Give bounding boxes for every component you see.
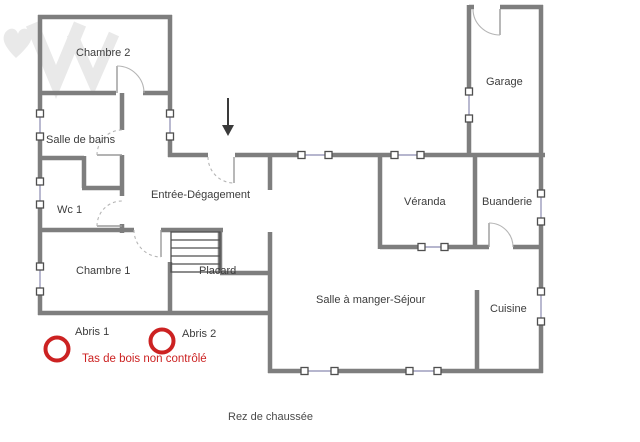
- room-label-buanderie: Buanderie: [482, 196, 532, 208]
- window-icon: [418, 244, 448, 251]
- window-icon: [538, 190, 545, 225]
- abris-1-label: Abris 1: [75, 326, 109, 338]
- room-label-cuisine: Cuisine: [490, 303, 527, 315]
- room-label-chambre-2: Chambre 2: [76, 47, 130, 59]
- room-label-chambre-1: Chambre 1: [76, 265, 130, 277]
- abris-2-marker: [151, 330, 174, 353]
- window-icon: [37, 110, 44, 140]
- window-icon: [301, 368, 338, 375]
- room-label-wc-1: Wc 1: [57, 204, 82, 216]
- door-arc-icon: [473, 9, 500, 35]
- window-icon: [37, 178, 44, 208]
- door-arc-icon: [489, 223, 513, 247]
- floor-plan-canvas: Chambre 2 Garage Salle de bains Wc 1 Ent…: [0, 0, 640, 442]
- floor-title: Rez de chaussée: [228, 411, 313, 423]
- room-label-garage: Garage: [486, 76, 523, 88]
- room-label-salle-de-bains: Salle de bains: [46, 134, 115, 146]
- window-icon: [406, 368, 441, 375]
- room-label-salle-a-manger-sejour: Salle à manger-Séjour: [316, 294, 425, 306]
- room-label-entree-degagement: Entrée-Dégagement: [151, 189, 250, 201]
- walls: [38, 5, 545, 373]
- room-label-placard: Placard: [199, 265, 236, 277]
- window-icon: [538, 288, 545, 325]
- window-icon: [167, 110, 174, 140]
- window-icon: [466, 88, 473, 122]
- room-label-veranda: Véranda: [404, 196, 446, 208]
- warning-text: Tas de bois non contrôlé: [82, 353, 207, 365]
- abris-2-label: Abris 2: [182, 328, 216, 340]
- door-arc-icon: [134, 230, 161, 257]
- door-arc-icon: [117, 66, 144, 93]
- window-icon: [298, 152, 332, 159]
- entrance-arrow-icon: [222, 98, 234, 136]
- floor-plan-drawing: [0, 0, 640, 442]
- door-arc-icons: [97, 9, 513, 257]
- window-icon: [37, 263, 44, 295]
- door-arc-icon: [97, 201, 122, 226]
- door-arc-icon: [208, 157, 234, 183]
- window-icon: [391, 152, 424, 159]
- abris-1-marker: [46, 338, 69, 361]
